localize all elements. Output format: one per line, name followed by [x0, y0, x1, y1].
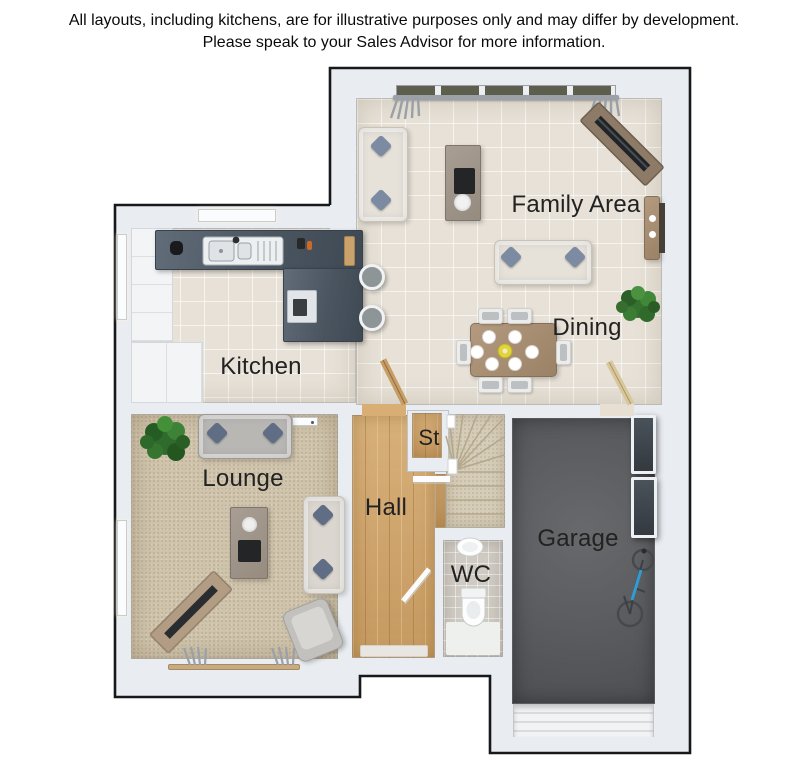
cushion	[370, 189, 393, 212]
chair-seat	[511, 381, 528, 389]
side-table	[644, 196, 660, 260]
dining-table	[470, 323, 557, 377]
stairs-floor	[446, 414, 505, 528]
chair-seat	[460, 344, 467, 361]
room-label-dining: Dining	[552, 314, 621, 342]
room-label-hall: Hall	[365, 494, 407, 522]
curtain-rail	[393, 95, 619, 100]
worktop-item-dark	[297, 238, 305, 249]
bowl	[649, 215, 656, 222]
kitchen-window	[198, 209, 276, 222]
dining-chair	[456, 340, 471, 365]
garage-cabinet	[631, 477, 657, 538]
lounge-door-leaf	[292, 417, 318, 426]
dining-chair	[556, 340, 571, 365]
family-sofa-left	[358, 127, 408, 222]
dining-chair	[507, 377, 532, 393]
front-door-mat	[360, 645, 428, 657]
kitchen-base-units	[131, 342, 203, 403]
lounge-sofa-right	[303, 496, 345, 594]
tray	[454, 168, 475, 194]
doily	[454, 194, 471, 211]
room-label-wc: WC	[451, 561, 491, 589]
floorplan-page: All layouts, including kitchens, are for…	[0, 0, 808, 768]
armchair-cushion	[290, 605, 335, 651]
cushion	[312, 558, 335, 581]
cushion	[312, 504, 335, 527]
chopping-board	[344, 236, 355, 266]
room-label-store: St	[418, 425, 439, 451]
dining-chair	[507, 308, 532, 324]
cushion	[206, 422, 229, 445]
disclaimer-line-2: Please speak to your Sales Advisor for m…	[0, 32, 808, 54]
doily	[242, 517, 257, 532]
garage-cabinet	[631, 415, 656, 474]
tray	[238, 540, 261, 562]
side-table-back	[659, 203, 665, 253]
disclaimer: All layouts, including kitchens, are for…	[0, 10, 808, 54]
lounge-window-sill	[168, 664, 300, 670]
cushion	[262, 422, 285, 445]
disclaimer-line-1: All layouts, including kitchens, are for…	[0, 10, 808, 32]
cushion	[500, 246, 523, 269]
garage-door-threshold	[600, 404, 634, 416]
family-coffee-table	[445, 145, 481, 221]
cushion	[564, 246, 587, 269]
chair-seat	[511, 312, 528, 320]
chair-seat	[560, 344, 567, 361]
chair-seat	[482, 312, 499, 320]
bowl	[649, 231, 656, 238]
room-label-garage: Garage	[537, 525, 618, 553]
lounge-coffee-table	[230, 507, 268, 579]
room-label-family-area: Family Area	[512, 191, 641, 219]
kitchen-worktop	[155, 230, 363, 270]
lounge-side-window	[117, 520, 127, 616]
garage-door	[513, 704, 654, 737]
kettle	[170, 241, 183, 255]
worktop-item-orange	[307, 241, 312, 250]
chair-seat	[482, 381, 499, 389]
dining-chair	[478, 308, 503, 324]
bar-stool	[359, 305, 385, 331]
coffee-machine	[287, 290, 317, 323]
dining-chair	[478, 377, 503, 393]
bar-stool	[359, 264, 385, 290]
family-sofa-centre	[494, 240, 592, 285]
lounge-sofa-top	[198, 414, 292, 459]
cushion	[370, 135, 393, 158]
room-label-lounge: Lounge	[202, 465, 283, 493]
hall-floor-extension	[435, 474, 446, 528]
wc-mat	[446, 622, 500, 655]
kitchen-side-window	[117, 234, 127, 320]
room-label-kitchen: Kitchen	[220, 353, 301, 381]
coffee-machine-front	[293, 299, 307, 316]
door-handle	[311, 421, 314, 424]
